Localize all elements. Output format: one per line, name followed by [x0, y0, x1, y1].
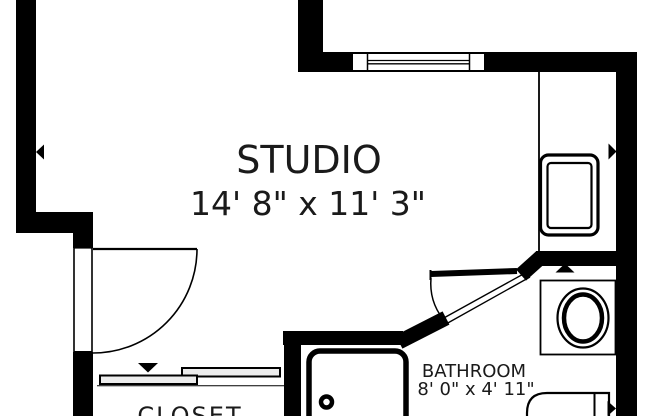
wall-bathroom-north — [536, 251, 616, 266]
sink-counter — [541, 281, 616, 355]
bathtub-drain — [321, 397, 332, 408]
closet-arrow-icon — [138, 363, 158, 373]
entry-door-swing-arc — [93, 249, 197, 353]
bathroom-door-leaf — [431, 271, 517, 274]
utility-unit-fixture — [541, 155, 599, 235]
wall-top-right-of-window — [485, 52, 637, 72]
studio-room-dimensions: 14' 8" x 11' 3" — [190, 187, 426, 220]
bathroom-swing-door — [431, 270, 531, 324]
utility-unit-inner — [548, 163, 592, 228]
bathtub-fixture — [309, 351, 406, 416]
entry-swing-door — [74, 248, 197, 353]
wall-top-left-of-window — [298, 52, 352, 72]
closet-sliding-doors — [97, 368, 284, 386]
closet-sliding-panel-front — [100, 376, 197, 385]
wall-left-upper — [16, 0, 36, 212]
right-wall-arrow-icon — [609, 144, 617, 160]
floorplan: STUDIO 14' 8" x 11' 3" BATHROOM 8' 0" x … — [0, 0, 652, 416]
bathroom-room-dimensions: 8' 0" x 4' 11" — [417, 381, 534, 399]
studio-room-label: STUDIO — [236, 141, 382, 179]
wall-diagonal-lower — [399, 318, 446, 342]
toilet-fixture — [527, 393, 609, 416]
toilet-outline — [527, 393, 609, 416]
wall-diagonal-upper — [521, 257, 541, 275]
left-wall-arrow-icon — [36, 145, 44, 160]
wall-left-jog — [16, 212, 93, 233]
wall-right — [616, 52, 637, 416]
window-frame — [352, 53, 485, 71]
closet-room-label: CLOSET — [137, 404, 242, 416]
sink-fixture — [541, 281, 616, 355]
wall-left-below-entry — [73, 352, 93, 416]
wall-closet-bathroom — [284, 331, 301, 416]
lower-right-arrow-icon — [608, 401, 617, 416]
window — [352, 53, 485, 71]
wall-left-above-entry — [73, 233, 93, 248]
bathroom-threshold-inner — [446, 277, 530, 324]
bathroom-threshold-outer — [442, 272, 527, 319]
entry-doorway — [74, 248, 92, 352]
